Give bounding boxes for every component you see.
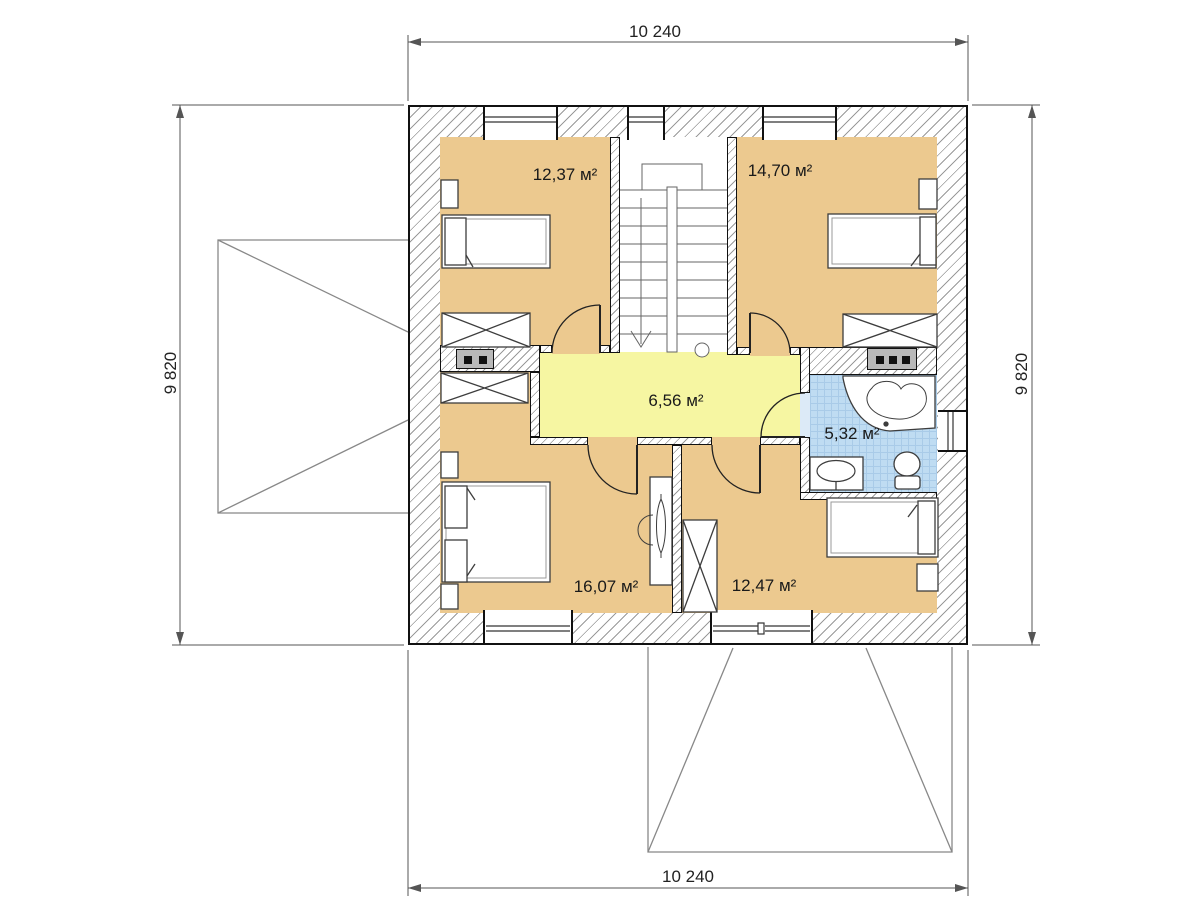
- wardrobe-icon: [843, 314, 937, 347]
- dimension-right: 9 820: [1012, 314, 1032, 434]
- area-label-bathroom: 5,32 м²: [792, 424, 912, 444]
- door-bedroom-bottom-left: [588, 445, 637, 494]
- area-label-hallway: 6,56 м²: [616, 391, 736, 411]
- nightstand-icon: [917, 564, 938, 591]
- area-label-bedroom-top-right: 14,70 м²: [720, 161, 840, 181]
- door-bedroom-bottom-right: [712, 445, 760, 493]
- wardrobe-icon: [441, 373, 528, 403]
- bathtub-icon: [843, 376, 935, 431]
- nightstand-icon: [919, 179, 937, 209]
- dresser-mirror-icon: [638, 477, 672, 585]
- nightstand-icon: [441, 180, 458, 208]
- wardrobe-icon: [442, 313, 530, 347]
- plan-linework: [0, 0, 1200, 923]
- nightstand-icon: [441, 452, 458, 478]
- dimension-top: 10 240: [595, 22, 715, 42]
- bed-single-icon: [442, 215, 550, 268]
- bed-single-icon: [827, 498, 938, 557]
- nightstand-icon: [441, 584, 458, 609]
- roof-outline-left: [218, 240, 408, 513]
- roof-outline-bottom: [648, 647, 952, 852]
- bed-double-icon: [442, 482, 550, 582]
- floor-plan: 12,37 м² 14,70 м² 6,56 м² 5,32 м² 16,07 …: [0, 0, 1200, 923]
- area-label-bedroom-bottom-right: 12,47 м²: [704, 576, 824, 596]
- toilet-icon: [894, 452, 920, 489]
- area-label-bedroom-bottom-left: 16,07 м²: [546, 577, 666, 597]
- dimension-left: 9 820: [161, 313, 181, 433]
- door-bedroom-top-right: [750, 313, 790, 353]
- stairs-icon: [620, 164, 727, 357]
- sink-icon: [810, 457, 863, 490]
- dimension-bottom: 10 240: [628, 867, 748, 887]
- wardrobe-icon: [683, 520, 717, 612]
- area-label-bedroom-top-left: 12,37 м²: [505, 165, 625, 185]
- door-bedroom-top-left: [552, 305, 600, 353]
- bed-single-icon: [828, 214, 936, 268]
